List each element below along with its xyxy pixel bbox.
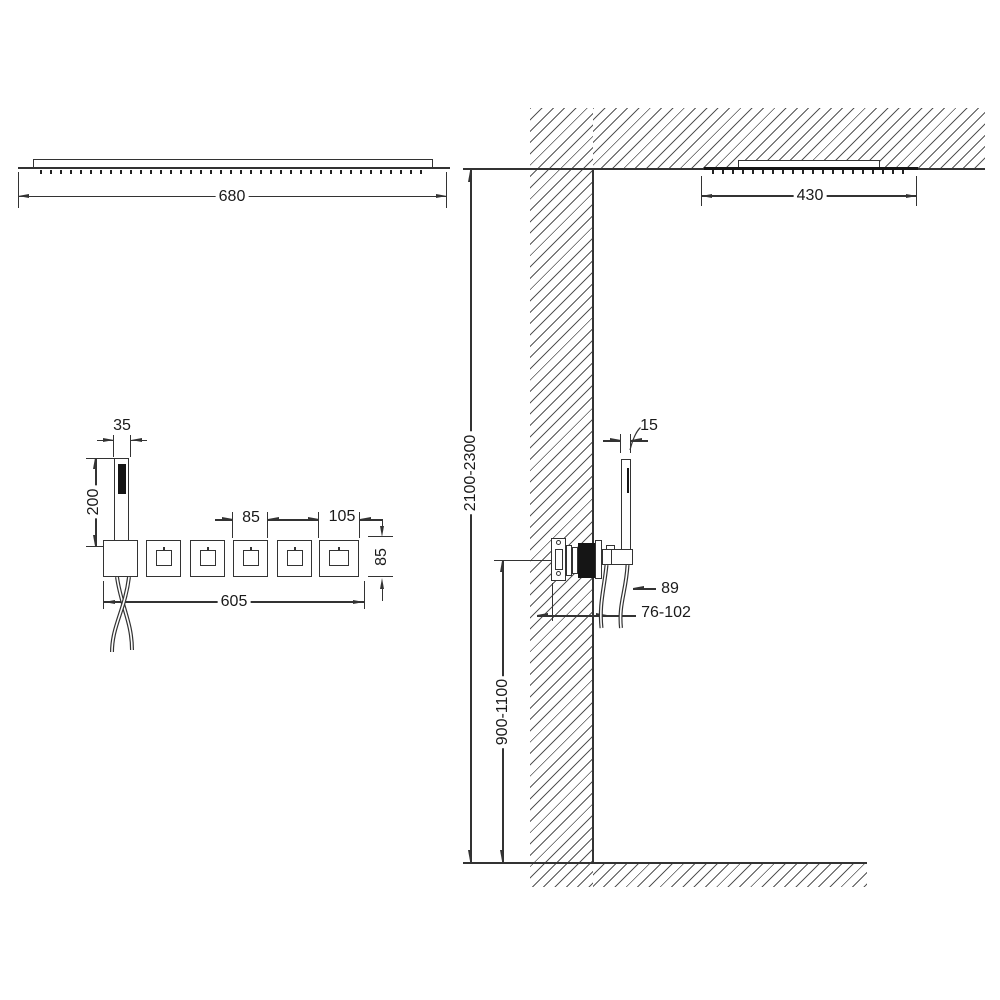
hose-curves (0, 0, 1000, 1000)
installation-drawing: 680 35 200 (0, 0, 1000, 1000)
